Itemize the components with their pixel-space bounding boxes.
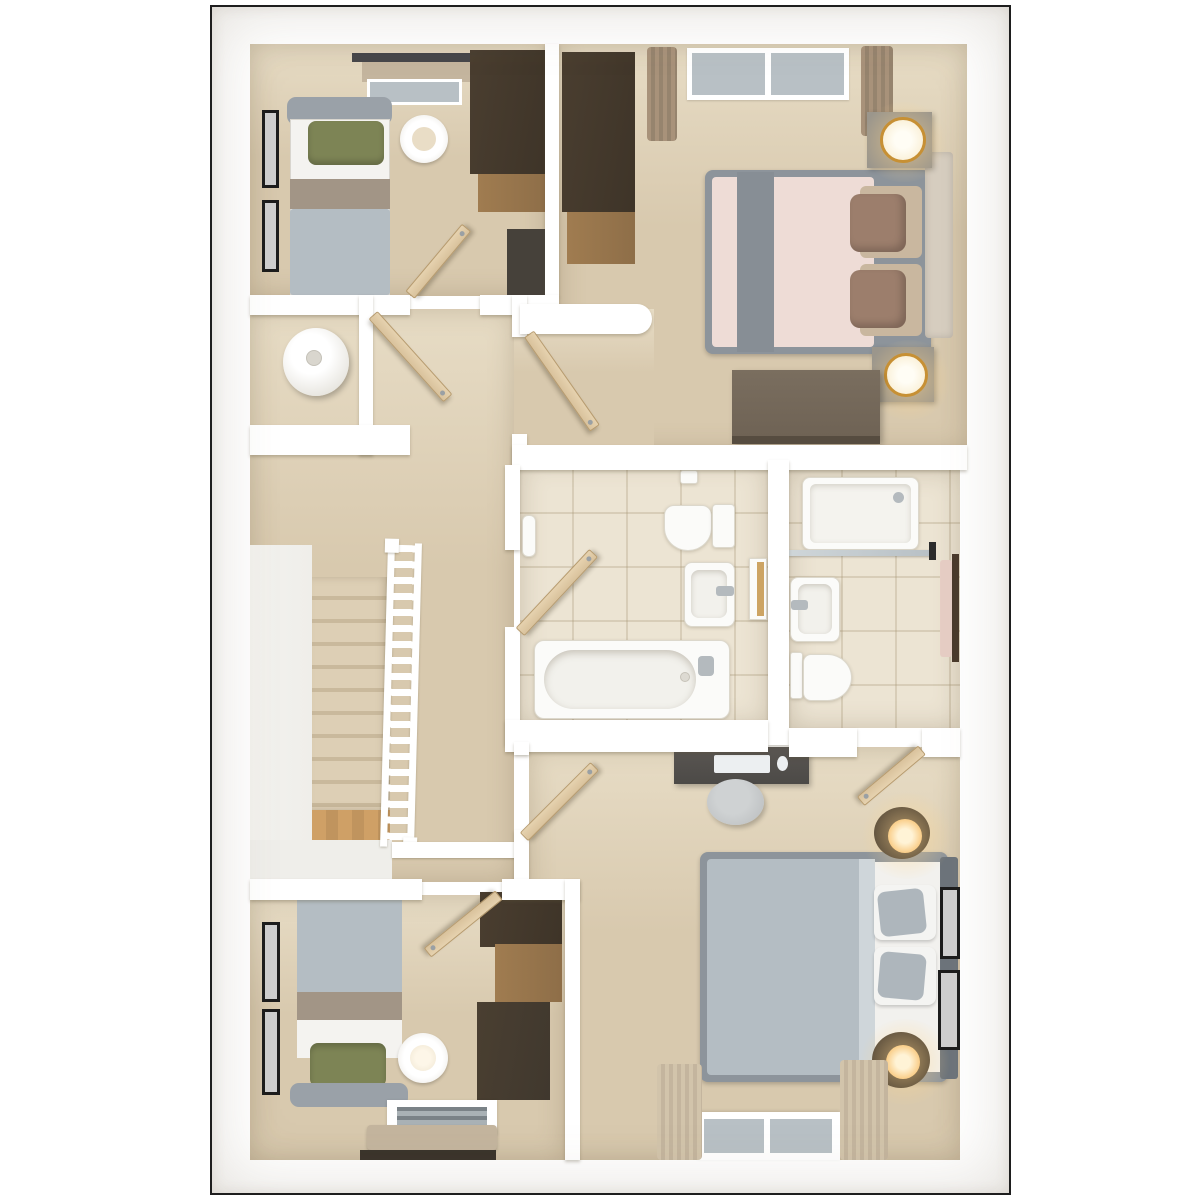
wardrobe-wood-face [567,212,635,264]
basin-tap-chrome [716,586,734,596]
wall [545,44,559,296]
stair-lower-wood [312,810,390,840]
landing-bottom-rail [392,842,516,858]
wall [565,879,580,1160]
bedroom-top-left-group [250,44,547,296]
newel-post [385,539,399,553]
bed-pillow-green [308,121,384,165]
towel-rail-dark [952,554,959,662]
bed-runner-gray [737,172,774,352]
pillow-gray [877,951,927,1001]
floorplan-frame [210,5,1011,1195]
bed-duvet-gray [707,859,867,1075]
stool [707,779,764,825]
curtain-left [647,47,677,141]
bathtub-basin [544,650,696,709]
curtain-left [657,1064,702,1160]
wall [250,295,410,315]
floorplan-render [0,0,1200,1200]
wall [789,728,857,757]
basin-tap-chrome [791,600,808,610]
window-pane [704,1119,764,1153]
bath-tap-chrome [698,656,714,676]
blind-bottom-bar [360,1150,496,1160]
picture-frame [938,970,960,1050]
pillow-brown [850,194,906,252]
shower-screen-handle [929,542,936,560]
window-pelmet [352,53,480,62]
wardrobe-wood-face [495,944,562,1002]
ensuite-group [789,470,960,728]
lamp-lit [888,819,922,853]
wall [514,742,529,755]
wardrobe-dark-bottom [477,1002,550,1100]
side-table-bowl [412,127,436,151]
picture-frame [262,200,279,272]
wall [512,445,967,470]
shower-drain-chrome [893,492,904,503]
wardrobe-wood-face [478,174,547,212]
bed-pillow-green [310,1043,386,1087]
landing-group [250,309,514,882]
bed-duvet-fold [859,859,875,1075]
shower-glass-screen [789,550,932,556]
pillow-brown [850,270,906,328]
stair-treads [312,577,390,810]
wardrobe [470,50,547,174]
lamp-lit [886,1045,920,1079]
pillow-gray [877,888,927,938]
shelf-timber [757,562,764,616]
bed-runner [290,179,390,209]
wall [505,720,768,752]
toilet-cistern [790,652,803,699]
towel-pink [940,560,952,657]
window-pane [770,1119,832,1153]
picture-frame [262,1009,280,1095]
blanket-bench-side [732,436,880,444]
table-lamp-gold [884,353,928,397]
toilet-bowl [803,654,852,701]
master-bedroom-group [559,44,967,450]
toilet-bowl [664,505,712,551]
towel-roll [522,515,536,557]
bulkhead-rounded-wall [520,304,652,334]
window-pane [771,53,844,95]
stair-void [250,545,312,845]
picture-frame [262,922,280,1002]
toilet-cistern [712,504,735,548]
chest-of-drawers [507,229,549,296]
bed-duvet [297,895,402,994]
roman-blind [367,1125,497,1150]
desk-mouse [777,756,788,771]
blanket-bench [732,370,880,442]
side-table-lamp [410,1045,436,1071]
wall [505,465,520,550]
wardrobe [562,52,635,212]
curtain-right [840,1060,888,1160]
picture-frame [262,110,279,188]
bed-duvet [290,209,390,295]
desk-keyboard [714,755,770,773]
wall [922,728,960,757]
wall-duct [768,460,789,745]
table-lamp-gold [880,117,926,163]
wall [250,425,410,455]
bath-drain [680,672,690,682]
bed-headboard-cream [925,152,953,338]
wall [250,879,422,900]
balustrade [380,543,422,848]
bedroom-bottom-left-group [250,895,565,1160]
window-glass-slats [397,1107,487,1127]
picture-frame [940,887,960,959]
stair-void-bottom [250,840,392,884]
bed-runner [297,992,402,1022]
bedroom-bottom-right-group [529,747,960,1160]
window-pane [692,53,765,95]
toilet-roll-holder [680,470,698,484]
